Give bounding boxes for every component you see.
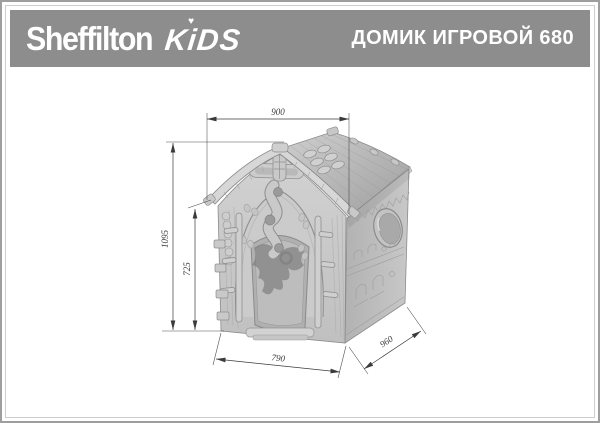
brand-logo: Sheffilton KiDS ♥ (26, 20, 241, 58)
dimension-label-960: 960 (378, 333, 395, 349)
header-bar: Sheffilton KiDS ♥ ДОМИК ИГРОВОЙ 680 (10, 10, 590, 67)
playhouse-drawing (203, 126, 412, 343)
product-title: ДОМИК ИГРОВОЙ 680 (351, 27, 574, 50)
dimension-wall-height: 725 (182, 200, 211, 330)
spec-sheet-page: Sheffilton KiDS ♥ ДОМИК ИГРОВОЙ 680 (0, 0, 600, 423)
brand-kids-wrap: KiDS ♥ (165, 24, 241, 58)
heart-icon: ♥ (188, 17, 194, 27)
dimension-label-900: 900 (271, 107, 285, 117)
dimension-label-1095: 1095 (160, 230, 170, 249)
dimension-label-790: 790 (271, 352, 286, 363)
brand-kids: KiDS (163, 24, 242, 58)
brand-name: Sheffilton (26, 20, 152, 58)
dimension-label-725: 725 (182, 262, 192, 276)
door-sill (246, 328, 314, 340)
